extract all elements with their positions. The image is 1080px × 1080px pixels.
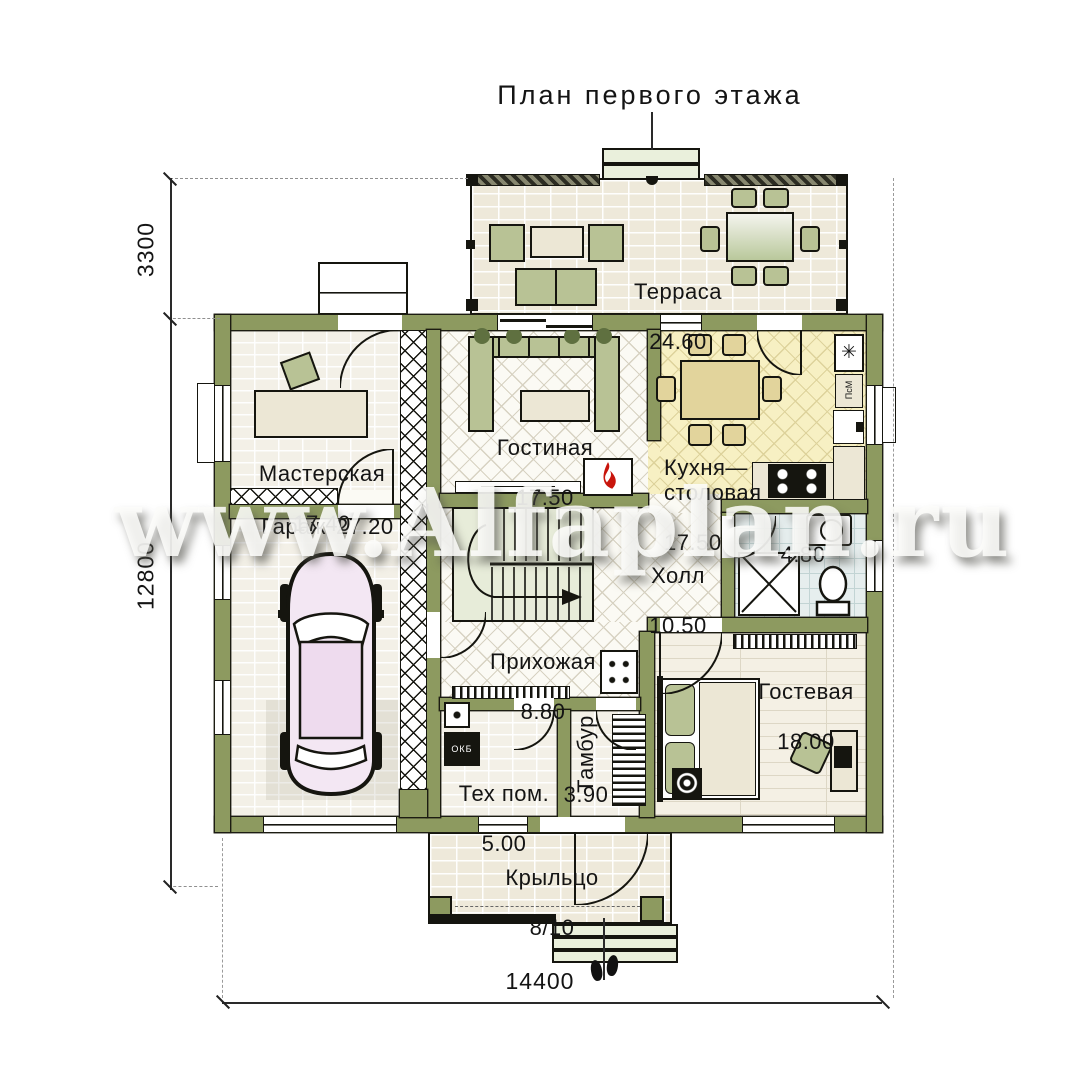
coffee-table [530,226,584,258]
window-sill [197,383,215,463]
dim-line-bottom [222,1002,882,1004]
window-guest [742,817,835,832]
faucet [856,422,863,432]
chair [800,226,820,252]
room-name: Прихожая [468,649,618,674]
sofa [515,268,597,306]
plant [506,328,522,344]
fridge-icon: ✳ [841,342,857,363]
terrace-railing-right [704,174,846,186]
terrace-post [466,174,478,186]
door-gap-garage-entry [427,612,440,658]
dishwasher-label: ПсМ [844,377,854,403]
room-label-terrace: Терраса 24.60 [588,254,768,379]
window-garage-2 [215,680,230,735]
terrace-post [466,299,478,311]
workshop-entry-landing [318,262,408,315]
tech-unit [444,702,470,728]
room-name: Крыльцо [462,865,642,890]
window-kitchen-right [867,385,882,445]
watermark: www.Alfaplan.ru [115,468,1011,579]
chair [763,188,789,208]
workshop-table [254,390,368,438]
dim-extension-line [168,886,218,887]
terrace-step [602,148,700,164]
terrace-post [839,240,848,249]
room-area: 10.50 [608,613,748,638]
sliding-door-leaf [500,319,546,322]
room-name: Терраса [588,279,768,304]
chair [762,376,782,402]
room-area: 18.00 [726,729,886,754]
garage-gate [263,817,397,832]
door-arc-workshop-entry [340,330,398,388]
chair [656,376,676,402]
fridge: ✳ [834,334,864,372]
plant [564,328,580,344]
room-name: Тех пом. [444,781,564,806]
dim-extension-line-left [222,838,223,998]
room-name: Гостевая [726,679,886,704]
room-area: 24.60 [588,329,768,354]
room-name: Гостиная [455,435,635,460]
door-gap-workshop-entry [338,315,402,330]
terrace-railing-left [474,174,600,186]
chair [700,226,720,252]
car [278,550,384,798]
room-area: 8/10 [462,915,642,940]
door-leaf [800,330,802,375]
window-workshop [215,385,230,462]
bed-headboard [657,676,663,802]
speaker [672,768,702,798]
terrace-post [836,174,848,186]
dim-extension-line-right [893,178,894,998]
sliding-door-leaf [546,325,592,328]
room-label-tambour-area: 3.90 [556,782,616,807]
page-title: План первого этажа [470,80,830,111]
wall-shaft-base [400,790,427,817]
terrace-post [466,240,475,249]
dim-label-3300: 3300 [133,204,160,296]
chair [731,188,757,208]
title-leader-line [651,112,653,150]
floor-plan-canvas: План первого этажа 3300 12800 14400 [0,0,1080,1080]
room-label-guest: Гостевая 18.00 [726,654,886,779]
terrace-post [836,299,848,311]
room-label-porch: Крыльцо 8/10 [462,840,642,965]
dim-extension-line [168,318,220,319]
armchair [489,224,525,262]
dim-extension-line [170,178,468,179]
radiator-guest [733,634,857,649]
plant [474,328,490,344]
